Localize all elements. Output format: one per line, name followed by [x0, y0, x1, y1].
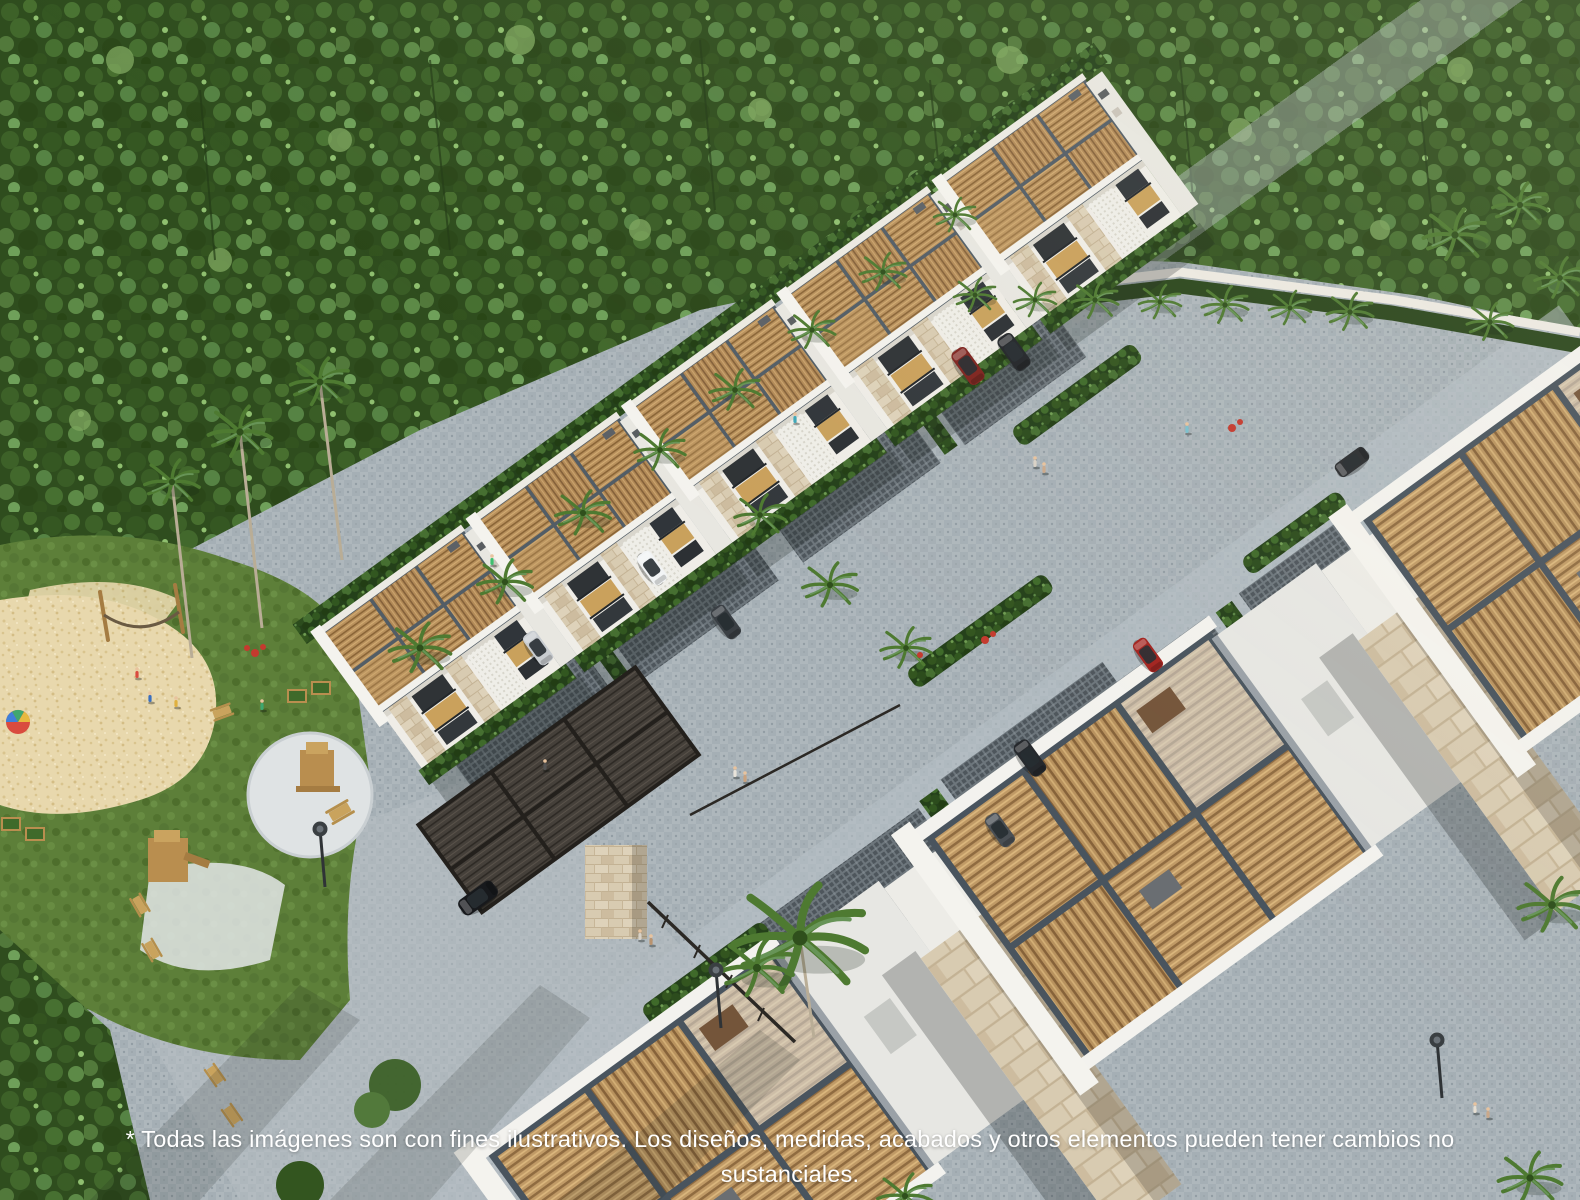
umbrella: [6, 710, 30, 734]
render-scene: [0, 0, 1580, 1200]
architectural-render: * Todas las imágenes son con fines ilust…: [0, 0, 1580, 1200]
